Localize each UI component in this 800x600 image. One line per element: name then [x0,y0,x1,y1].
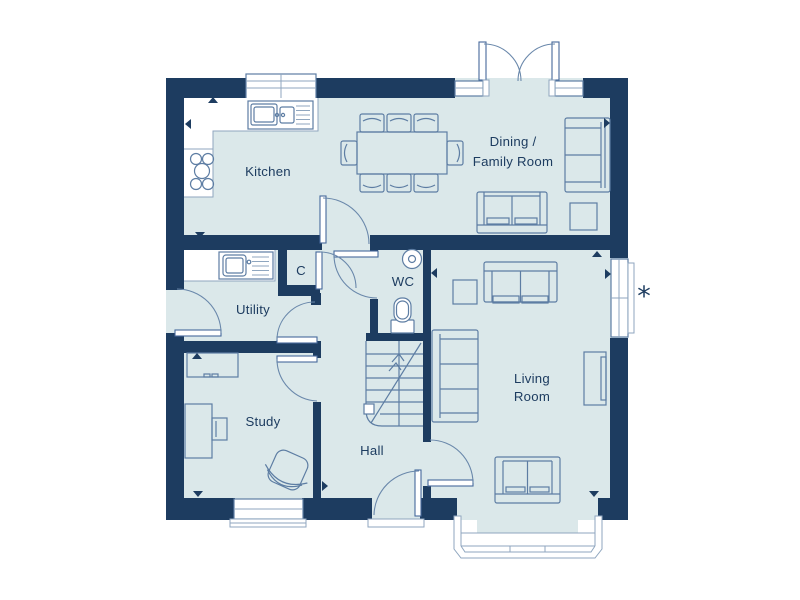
floor-plan: Kitchen Dining / Family Room Utility C W… [0,0,800,600]
label-wc: WC [392,274,415,289]
window-asterisk-note: * [637,281,651,312]
dining-sidelight-left [455,81,483,96]
label-living-line1: Living [514,371,550,386]
stairs-newel [364,404,374,414]
label-utility: Utility [236,302,270,317]
label-study: Study [246,414,281,429]
label-dining-line1: Dining / [490,134,537,149]
wc-basin [403,250,422,269]
study-window [230,499,306,527]
kitchen-window [246,74,316,100]
kitchen-sink [248,101,313,129]
label-living-line2: Room [514,389,550,404]
floor-plan-page: Kitchen Dining / Family Room Utility C W… [0,0,800,600]
wc-toilet [391,298,414,333]
living-window [611,259,634,337]
label-kitchen: Kitchen [245,164,291,179]
label-cupboard: C [296,263,306,278]
label-dining-line2: Family Room [473,154,553,169]
utility-fixtures [184,250,275,281]
label-hall: Hall [360,443,384,458]
dining-sidelight-right [555,81,583,96]
utility-sink [219,252,273,279]
